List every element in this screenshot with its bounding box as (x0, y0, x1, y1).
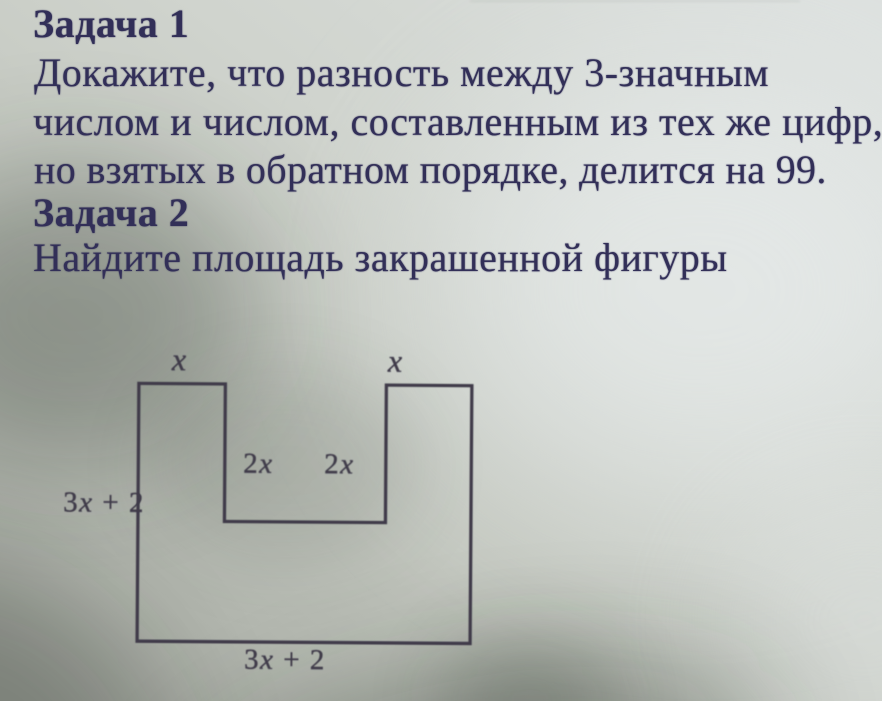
svg-text:2x: 2x (324, 448, 355, 480)
svg-text:x: x (171, 341, 186, 377)
svg-text:x: x (387, 343, 402, 379)
svg-text:3x + 2: 3x + 2 (63, 486, 145, 519)
svg-text:2x: 2x (243, 448, 274, 480)
svg-text:3x + 2: 3x + 2 (244, 644, 326, 677)
